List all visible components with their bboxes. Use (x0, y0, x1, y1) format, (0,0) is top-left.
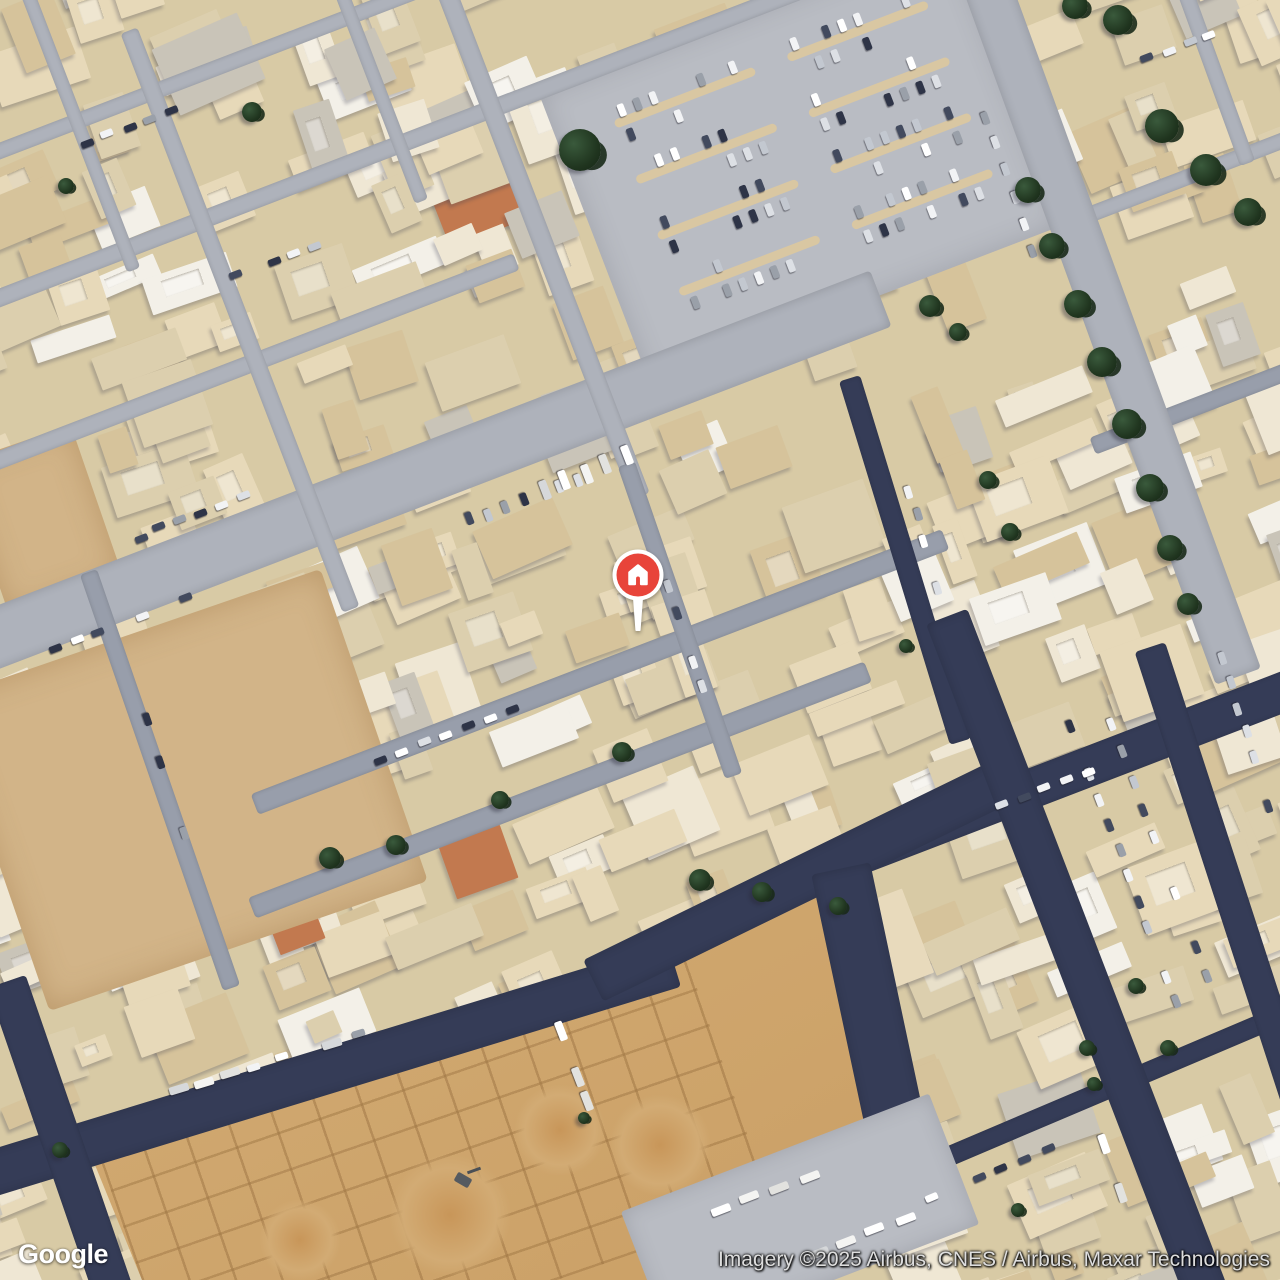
imagery-attribution: Imagery ©2025 Airbus, CNES / Airbus, Max… (718, 1248, 1270, 1272)
satellite-map[interactable]: Google Imagery ©2025 Airbus, CNES / Airb… (0, 0, 1280, 1280)
location-pin[interactable] (606, 548, 670, 648)
google-logo[interactable]: Google (18, 1239, 108, 1270)
pin-stem (634, 598, 642, 630)
